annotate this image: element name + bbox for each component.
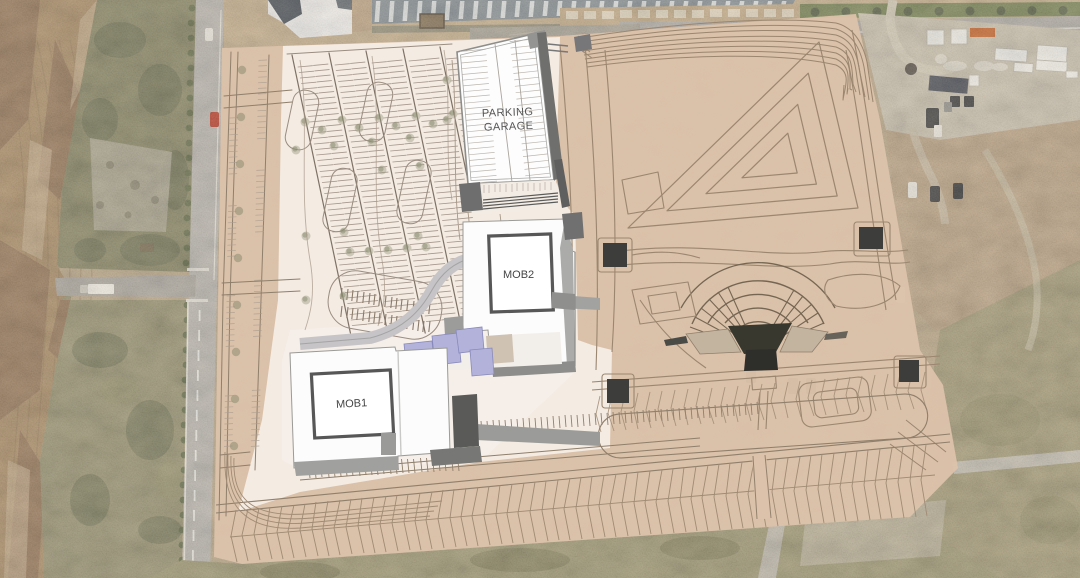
svg-text:PARKING: PARKING [482,106,534,120]
svg-text:MOB1: MOB1 [336,397,368,411]
svg-text:GARAGE: GARAGE [484,120,534,134]
svg-text:MOB2: MOB2 [503,269,534,281]
